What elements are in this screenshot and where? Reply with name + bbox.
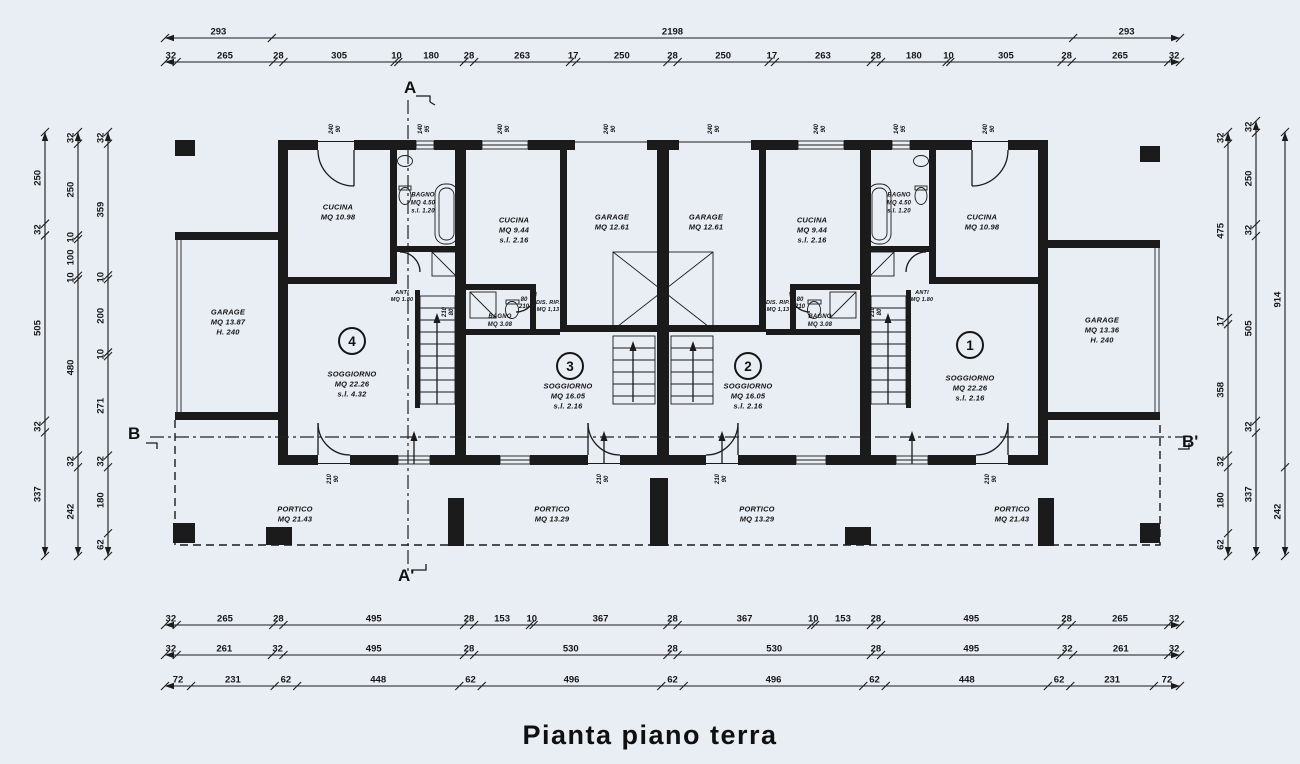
dimension-label: 17 [568, 51, 579, 62]
label-cucina-1: CUCINAMQ 10.98 [965, 212, 1000, 232]
dimension-label: 263 [514, 51, 530, 62]
dimension-label: 495 [963, 644, 980, 655]
unit-4-badge: 4 [338, 327, 366, 355]
label-d3: 21090 [715, 474, 729, 484]
label-d1: 21090 [327, 474, 341, 484]
dimension-label: 62 [1216, 539, 1227, 550]
dimension-label: 32 [166, 614, 177, 625]
section-marker-a-top: A [404, 78, 416, 98]
dimension-label: 263 [815, 51, 831, 62]
dimension-label: 250 [614, 51, 630, 62]
label-w5: 14095 [894, 124, 908, 134]
dimension-label: 72 [173, 675, 184, 686]
dimension-label: 180 [1216, 492, 1227, 508]
dimension-label: 28 [667, 614, 678, 625]
dimension-label: 495 [963, 614, 980, 625]
dimension-label: 62 [281, 675, 292, 686]
dim-chain-left_col_inner: 3235910200102713218062 [96, 128, 113, 560]
label-portico-3: PORTICOMQ 13.29 [534, 504, 569, 524]
dimension-label: 32 [1244, 122, 1255, 133]
dim-chain-top_row1: 2932198293 [161, 27, 1184, 43]
dim-chain-right_col_inner: 32475173583218062 [1216, 128, 1233, 560]
label-i3: 21080 [442, 307, 456, 317]
dimension-label: 475 [1216, 222, 1227, 239]
dimension-label: 62 [667, 675, 678, 686]
dim-chain-left_col_outer: 2503250532337 [33, 128, 50, 560]
label-i4: 21080 [870, 307, 884, 317]
dimension-label: 496 [564, 675, 580, 686]
dimension-label: 28 [273, 614, 284, 625]
dimension-label: 32 [96, 456, 107, 467]
label-garage-3: GARAGEMQ 12.61 [595, 212, 630, 232]
dimension-label: 293 [1119, 27, 1135, 38]
dimension-label: 250 [715, 51, 731, 62]
dim-chain-bottom_row3: 72231624486249662496624486223172 [161, 675, 1184, 691]
dim-chain-bottom_row2: 32261324952853028530284953226132 [161, 644, 1184, 660]
dimension-label: 100 [66, 250, 77, 266]
dimension-label: 305 [998, 51, 1015, 62]
dimension-label: 62 [869, 675, 880, 686]
dimension-label: 242 [1273, 504, 1284, 520]
dimension-label: 265 [217, 614, 234, 625]
dimension-label: 10 [96, 272, 107, 283]
dimension-label: 480 [66, 360, 77, 376]
dim-chain-bottom_row1: 3226528495281531036728367101532849528265… [161, 614, 1184, 630]
dimension-label: 505 [33, 319, 44, 336]
dimension-label: 10 [66, 272, 77, 283]
dimension-label: 265 [1112, 614, 1129, 625]
label-portico-2: PORTICOMQ 13.29 [739, 504, 774, 524]
dimension-label: 231 [225, 675, 242, 686]
dimension-label: 28 [871, 644, 882, 655]
dimension-label: 28 [464, 51, 475, 62]
dimension-label: 367 [593, 614, 609, 625]
dimension-label: 32 [33, 421, 44, 432]
dimension-label: 62 [1054, 675, 1065, 686]
label-anti-1: ANTIMQ 1.80 [911, 290, 934, 304]
unit-3-badge: 3 [556, 352, 584, 380]
dimension-label: 337 [33, 486, 44, 502]
dim-chain-right_col_outer: 914242 [1273, 128, 1290, 560]
dimension-label: 28 [1061, 51, 1072, 62]
direction-arrow [630, 341, 637, 402]
dimension-label: 250 [66, 182, 77, 198]
dimension-label: 17 [767, 51, 778, 62]
dimension-label: 32 [1169, 614, 1180, 625]
dimension-label: 231 [1104, 675, 1121, 686]
dimension-label: 271 [96, 397, 107, 414]
dimension-label: 530 [766, 644, 782, 655]
dimension-label: 495 [366, 614, 383, 625]
label-garage-2: GARAGEMQ 12.61 [689, 212, 724, 232]
dimension-label: 62 [465, 675, 476, 686]
label-soggiorno-3: SOGGIORNOMQ 16.05s.l. 2.16 [544, 381, 593, 410]
dimension-label: 28 [871, 614, 882, 625]
label-w1: 24090 [329, 124, 343, 134]
label-bagno-3: BAGNOMQ 3.08 [488, 314, 512, 330]
dimension-label: 261 [216, 644, 233, 655]
dimension-label: 358 [1216, 382, 1227, 398]
dimension-label: 505 [1244, 320, 1255, 337]
dimension-label: 448 [370, 675, 386, 686]
dimension-label: 337 [1244, 486, 1255, 502]
dimension-label: 28 [667, 644, 678, 655]
label-cucina-3: CUCINAMQ 9.44s.l. 2.16 [499, 215, 529, 244]
dimension-label: 32 [66, 133, 77, 144]
plan-title: Pianta piano terra [0, 720, 1300, 751]
dimension-label: 153 [494, 614, 510, 625]
dimension-label: 32 [1216, 456, 1227, 467]
dimension-label: 261 [1113, 644, 1130, 655]
label-i1: 80210 [519, 297, 529, 311]
dimension-label: 242 [66, 504, 77, 520]
floorplan-drawing: 2932198293322652830510180282631725028250… [0, 0, 1300, 764]
label-garage-left: GARAGEMQ 13.87H. 240 [211, 307, 246, 336]
label-cucina-4: CUCINAMQ 10.98 [321, 202, 356, 222]
dimension-label: 10 [96, 349, 107, 360]
label-w6: 24090 [983, 124, 997, 134]
unit-1-badge: 1 [956, 331, 984, 359]
dimension-label: 28 [667, 51, 678, 62]
dimension-label: 32 [166, 644, 177, 655]
dimension-label: 180 [906, 51, 922, 62]
dimension-label: 265 [217, 51, 234, 62]
label-i2: 80210 [795, 297, 805, 311]
dimension-label: 10 [66, 232, 77, 243]
dimension-label: 914 [1273, 291, 1284, 308]
dimension-label: 28 [1061, 614, 1072, 625]
section-marker-b-left: B [128, 424, 140, 444]
direction-arrow [885, 313, 892, 404]
dimension-label: 32 [1062, 644, 1073, 655]
label-bagno-4: BAGNOMQ 4.50s.l. 1.20 [411, 192, 435, 215]
label-soggiorno-1: SOGGIORNOMQ 22.26s.l. 2.16 [946, 373, 995, 402]
label-d4: 21090 [985, 474, 999, 484]
dimension-label: 293 [210, 27, 226, 38]
dimension-label: 28 [464, 644, 475, 655]
label-bagno-1: BAGNOMQ 4.50s.l. 1.20 [887, 192, 911, 215]
dimension-label: 62 [96, 539, 107, 550]
dimension-label: 32 [1244, 225, 1255, 236]
dimension-label: 32 [1169, 51, 1180, 62]
dimension-label: 32 [66, 456, 77, 467]
label-w3: 24090 [498, 124, 512, 134]
label-garage-right: GARAGEMQ 13.36H. 240 [1085, 315, 1120, 344]
label-soggiorno-4: SOGGIORNOMQ 22.26s.l. 4.32 [328, 369, 377, 398]
dimension-label: 32 [96, 133, 107, 144]
dimension-label: 28 [273, 51, 284, 62]
dimension-label: 495 [366, 644, 383, 655]
dimension-label: 32 [166, 51, 177, 62]
label-d2: 21090 [597, 474, 611, 484]
dimension-label: 32 [33, 224, 44, 235]
label-w2: 14095 [418, 124, 432, 134]
dimension-label: 530 [563, 644, 579, 655]
dimension-label: 250 [1244, 171, 1255, 187]
dimension-label: 200 [96, 308, 107, 324]
dimension-label: 32 [272, 644, 283, 655]
dimension-label: 153 [835, 614, 851, 625]
label-disrip-3: DIS. RIP.MQ 1,13 [536, 300, 560, 314]
dimension-label: 250 [33, 170, 44, 186]
section-marker-a-bottom: A' [398, 566, 414, 586]
dimension-label: 17 [1216, 316, 1227, 327]
dim-chain-top_row2: 3226528305101802826317250282501726328180… [161, 51, 1184, 67]
dimension-label: 265 [1112, 51, 1129, 62]
dimension-label: 2198 [662, 27, 683, 38]
dimension-label: 305 [331, 51, 348, 62]
dimension-label: 72 [1162, 675, 1173, 686]
label-disrip-2: DIS. RIP.MQ 1,13 [766, 300, 790, 314]
dimension-label: 496 [766, 675, 782, 686]
dimension-label: 367 [737, 614, 753, 625]
dimension-label: 180 [423, 51, 439, 62]
dimension-label: 180 [96, 492, 107, 508]
label-portico-1: PORTICOMQ 21.43 [994, 504, 1029, 524]
dimension-label: 448 [959, 675, 975, 686]
label-soggiorno-2: SOGGIORNOMQ 16.05s.l. 2.16 [724, 381, 773, 410]
dimension-label: 28 [871, 51, 882, 62]
label-g2: 24090 [708, 124, 722, 134]
label-bagno-2: BAGNOMQ 3.08 [808, 314, 832, 330]
dimension-label: 28 [464, 614, 475, 625]
label-anti-4: ANTIMQ 1.80 [391, 290, 414, 304]
dim-chain-left_col_mid: 32250101001048032242 [66, 128, 83, 560]
label-cucina-2: CUCINAMQ 9.44s.l. 2.16 [797, 215, 827, 244]
direction-arrow [434, 313, 441, 404]
unit-2-badge: 2 [734, 352, 762, 380]
label-w4: 24090 [814, 124, 828, 134]
dimension-label: 32 [1169, 644, 1180, 655]
section-marker-b-right: B' [1182, 432, 1198, 452]
dimension-label: 32 [1216, 133, 1227, 144]
dim-chain-right_col_mid: 322503250532337 [1244, 117, 1261, 560]
direction-arrow [690, 341, 697, 402]
label-g1: 24090 [604, 124, 618, 134]
dimension-label: 359 [96, 202, 107, 218]
dimension-label: 32 [1244, 421, 1255, 432]
label-portico-4: PORTICOMQ 21.43 [277, 504, 312, 524]
